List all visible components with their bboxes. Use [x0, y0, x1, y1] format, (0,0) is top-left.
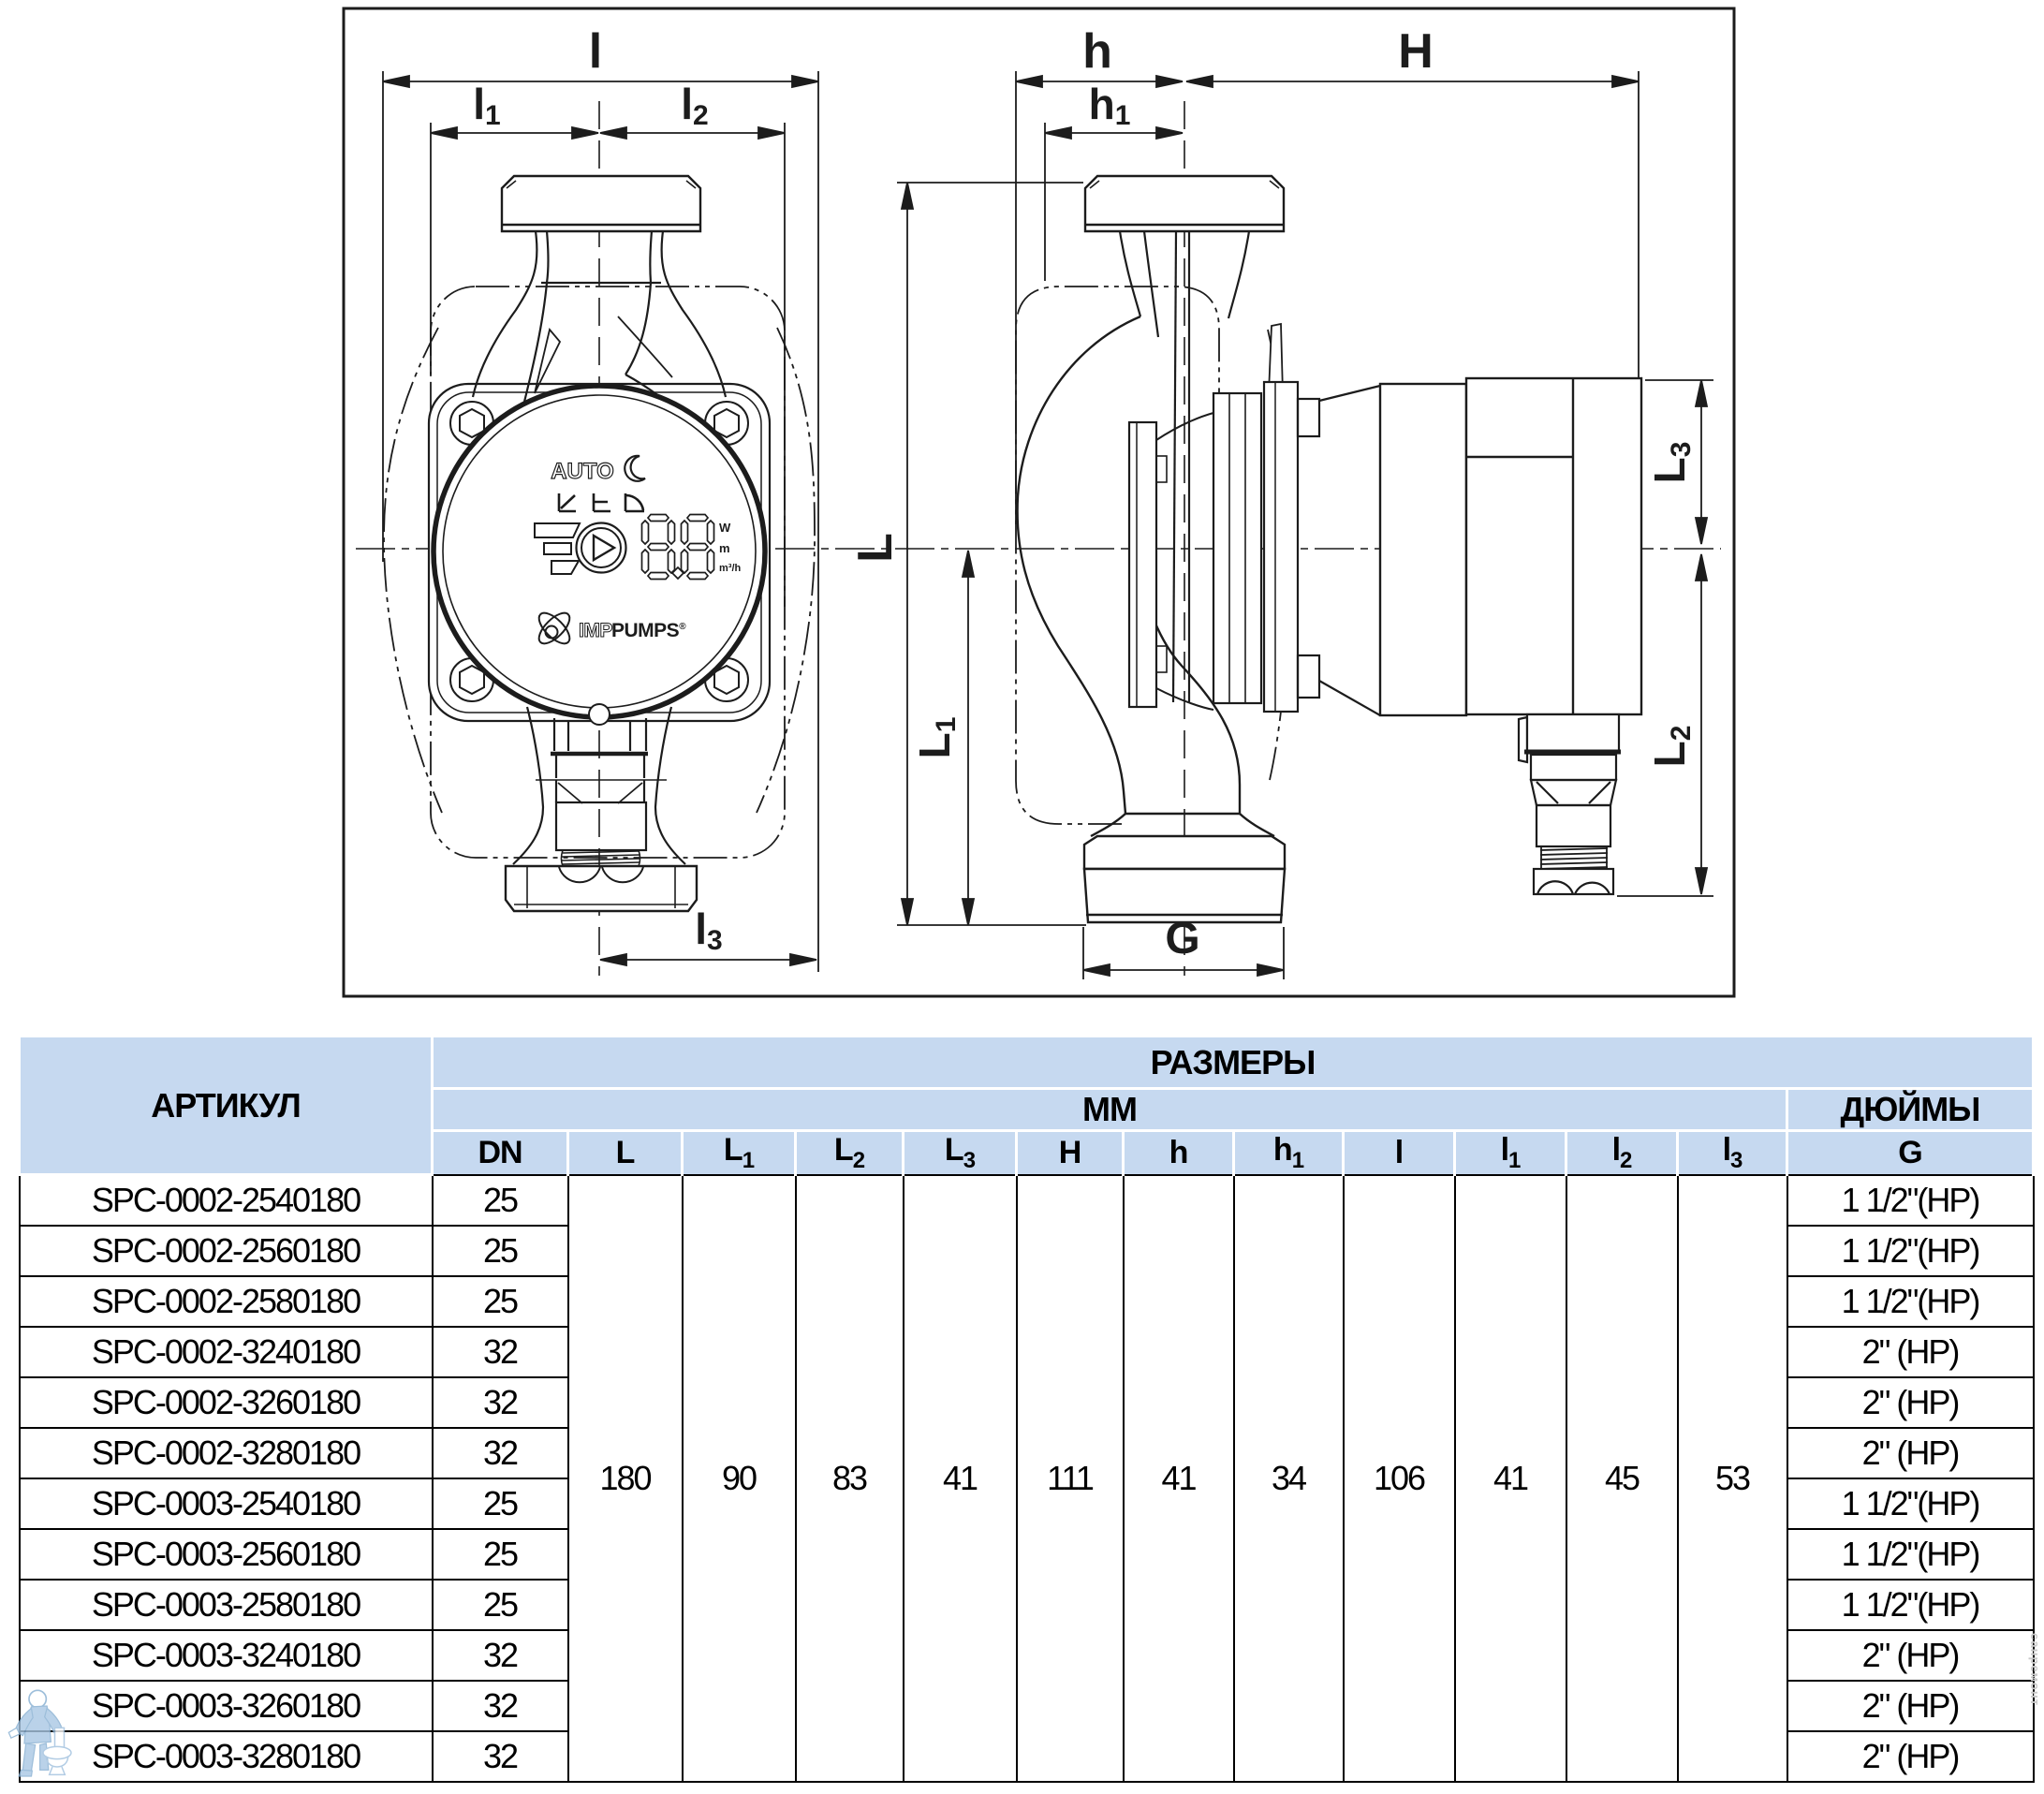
- svg-text:L2: L2: [1645, 726, 1697, 768]
- svg-text:l3: l3: [695, 904, 722, 956]
- svg-text:l2: l2: [681, 80, 708, 131]
- svg-text:m³/h: m³/h: [719, 563, 742, 574]
- svg-text:L1: L1: [910, 717, 962, 759]
- svg-text:PUMPS®: PUMPS®: [611, 620, 686, 641]
- svg-text:h: h: [1082, 24, 1112, 79]
- svg-text:IMP: IMP: [579, 620, 612, 641]
- svg-text:H: H: [1398, 24, 1434, 79]
- svg-text:l1: l1: [473, 80, 500, 131]
- svg-text:l: l: [589, 24, 602, 79]
- svg-text:W: W: [719, 521, 731, 535]
- svg-text:m: m: [719, 541, 730, 555]
- svg-text:L3: L3: [1645, 442, 1697, 484]
- svg-text:AUTO: AUTO: [551, 459, 614, 484]
- svg-text:L: L: [848, 533, 903, 563]
- svg-text:h1: h1: [1089, 80, 1131, 131]
